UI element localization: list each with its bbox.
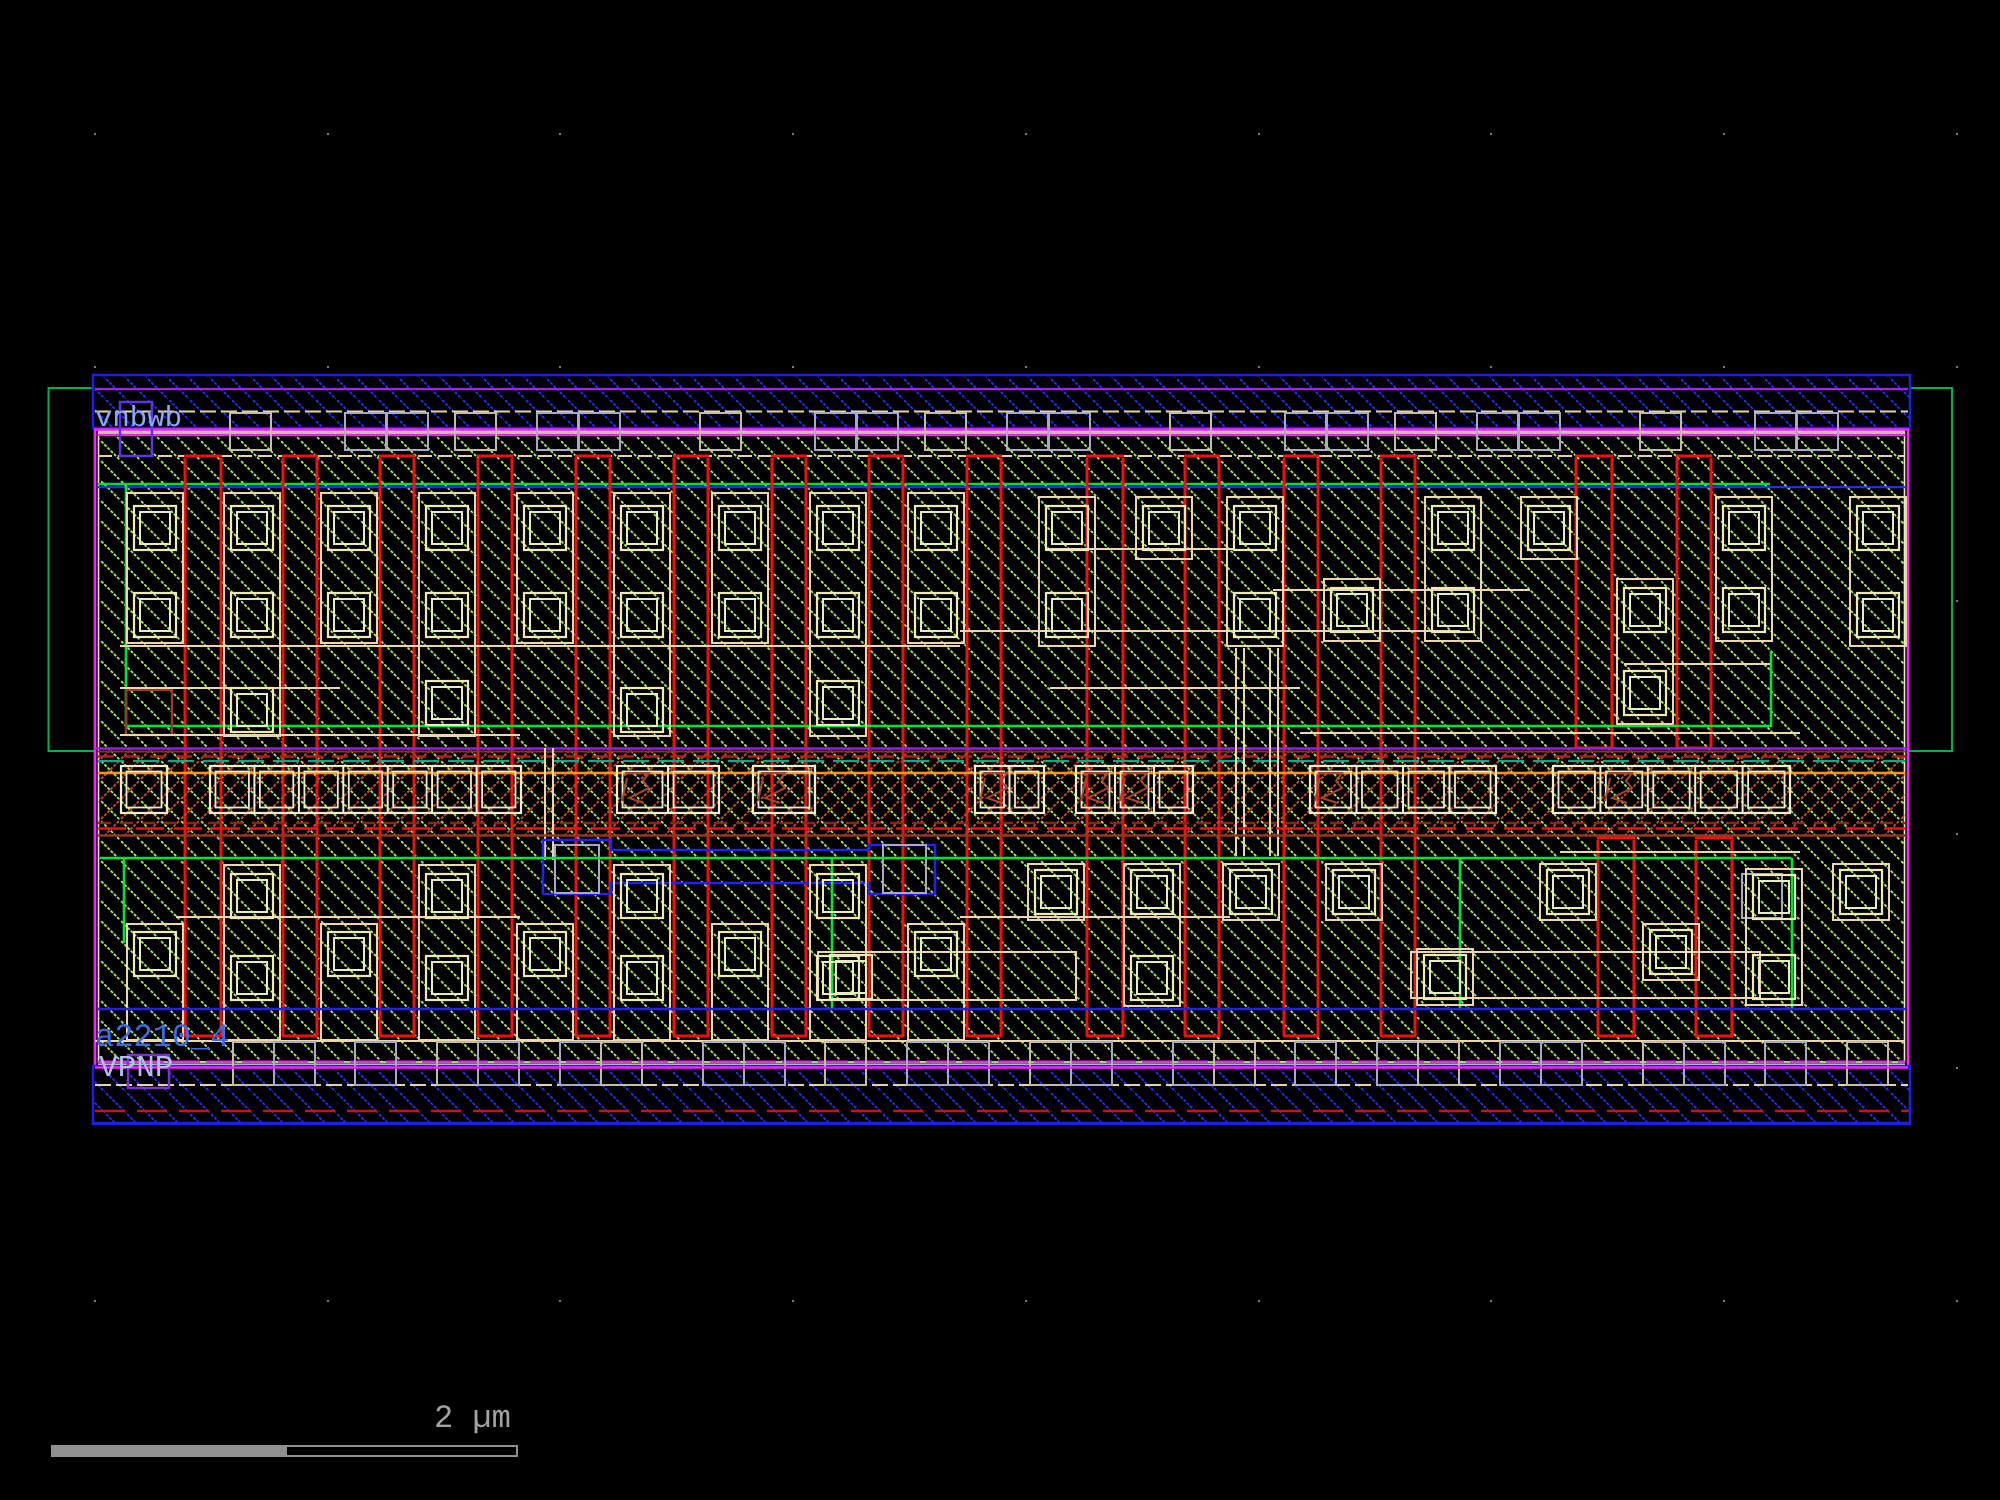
- svg-text:VPNP: VPNP: [99, 1051, 173, 1086]
- svg-text:vnbwb: vnbwb: [95, 402, 182, 435]
- svg-text:2 µm: 2 µm: [434, 1400, 511, 1437]
